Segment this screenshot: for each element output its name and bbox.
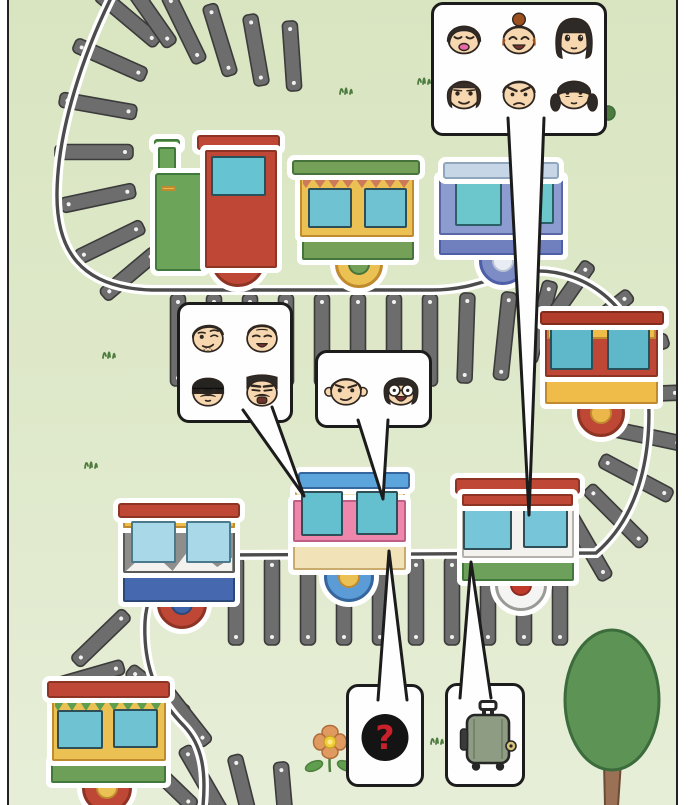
passenger-face-old-man-grinning bbox=[237, 309, 287, 359]
passenger-face-man-flattop-mustache bbox=[237, 363, 287, 413]
passenger-face-man-wink-stubble bbox=[183, 309, 233, 359]
question-mark-icon: ? bbox=[375, 721, 394, 754]
grass-tuft bbox=[418, 78, 430, 84]
passenger-face-woman-bob-glasses bbox=[376, 362, 426, 412]
speech-bubble-four-passengers bbox=[177, 302, 293, 423]
passenger-face-girl-pigtails bbox=[548, 64, 600, 116]
train-car-red-yellow bbox=[538, 308, 664, 438]
grass-tuft bbox=[611, 638, 623, 644]
speech-bubble-mystery: ? bbox=[346, 684, 424, 787]
face-man-angry bbox=[493, 64, 545, 116]
speech-bubble-suitcase bbox=[445, 683, 525, 787]
face-boy-bowl-cut-smiling bbox=[438, 9, 490, 61]
passenger-face-woman-side-hair-smiling bbox=[438, 64, 490, 116]
face-man-big-ears-smirk bbox=[321, 362, 371, 412]
train-car-gray-mountain bbox=[115, 498, 241, 630]
grass-tuft bbox=[103, 352, 115, 358]
grass-tuft bbox=[431, 738, 443, 744]
passenger-face-woman-bun-laughing bbox=[493, 9, 545, 61]
face-man-flattop-mustache bbox=[237, 363, 287, 413]
passenger-face-woman-long-hair bbox=[548, 9, 600, 61]
face-girl-pigtails bbox=[548, 64, 600, 116]
train-car-blue bbox=[436, 160, 566, 286]
face-man-beanie-mustache bbox=[183, 363, 233, 413]
grass-tuft bbox=[340, 88, 352, 94]
speech-bubble-two-passengers bbox=[315, 350, 432, 428]
train-car-bottom-yellow bbox=[44, 676, 172, 805]
train-car-pink bbox=[288, 468, 412, 604]
train-locomotive bbox=[148, 133, 282, 290]
face-woman-bun-laughing bbox=[493, 9, 545, 61]
suitcase-icon bbox=[459, 700, 517, 774]
face-woman-bob-glasses bbox=[376, 362, 426, 412]
passenger-face-man-big-ears-smirk bbox=[321, 362, 371, 412]
train-car-green-yellow bbox=[292, 158, 420, 288]
passenger-face-man-beanie-mustache bbox=[183, 363, 233, 413]
face-woman-long-hair bbox=[548, 9, 600, 61]
face-old-man-grinning bbox=[237, 309, 287, 359]
suitcase-icon bbox=[459, 700, 517, 778]
passenger-face-boy-bowl-cut-smiling bbox=[438, 9, 490, 61]
mystery-circle: ? bbox=[362, 714, 409, 761]
speech-bubble-six-passengers bbox=[431, 2, 607, 136]
train-car-white-green bbox=[452, 472, 584, 608]
face-woman-side-hair-smiling bbox=[438, 64, 490, 116]
passenger-face-man-angry bbox=[493, 64, 545, 116]
comic-page: ? bbox=[0, 0, 700, 805]
tree bbox=[565, 630, 659, 805]
face-man-wink-stubble bbox=[183, 309, 233, 359]
grass-tuft bbox=[85, 462, 97, 468]
comic-panel: ? bbox=[7, 0, 678, 805]
